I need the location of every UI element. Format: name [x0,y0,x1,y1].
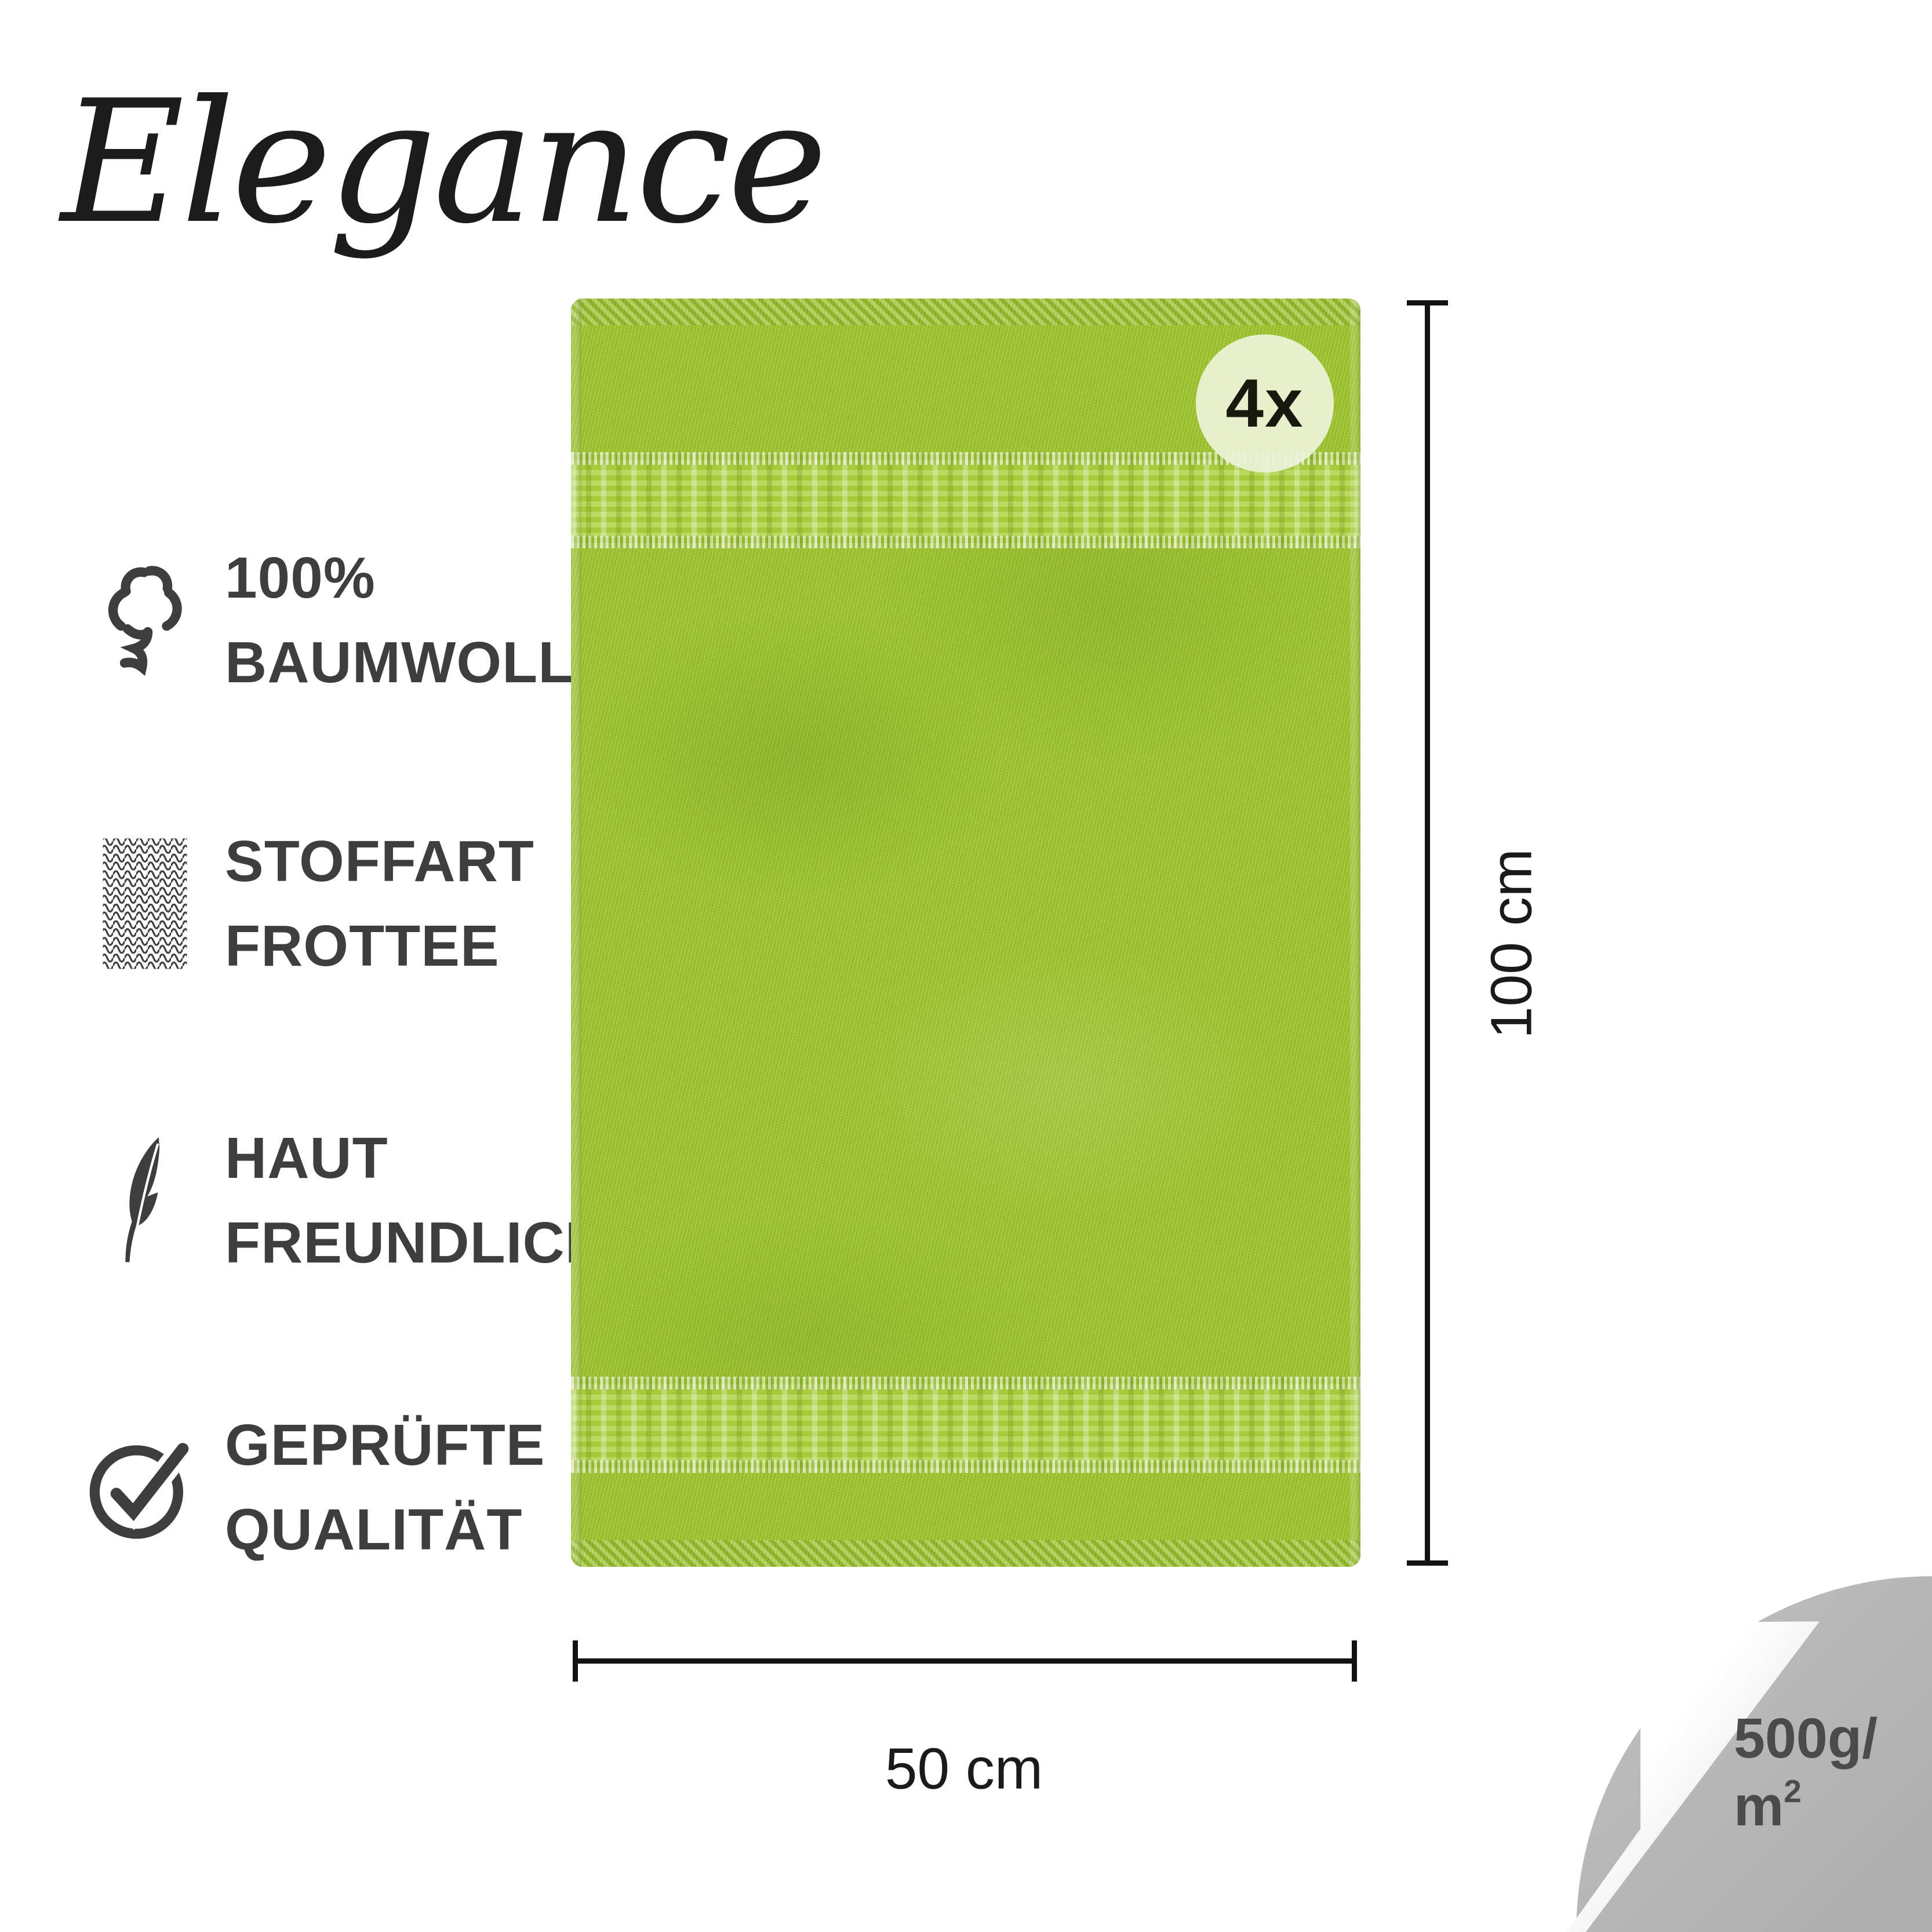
height-dimension-label: 100 cm [1479,849,1545,1039]
feature-line: STOFFART [225,819,534,904]
feather-icon [87,1125,203,1276]
width-dimension-label: 50 cm [885,1736,1043,1803]
page-curl-corner: 500g/ m2 [1549,1549,1932,1932]
fabric-weight-label: 500g/ m2 [1734,1705,1878,1840]
feature-line: HAUT [225,1116,607,1200]
towel-border-band-bottom [571,1377,1360,1473]
feature-cotton: 100% BAUMWOLLE [87,545,638,696]
feature-line: FREUNDLICH [225,1200,607,1285]
feature-quality: GEPRÜFTE QUALITÄT [87,1412,638,1563]
quantity-badge-label: 4x [1225,364,1304,443]
cotton-icon [87,545,203,696]
feature-line: FROTTEE [225,904,534,988]
towel-hem-top [571,299,1360,325]
product-infographic: Elegance 100% BAUMWOLLE [0,0,1932,1932]
fabric-weight-sup: 2 [1784,1773,1802,1809]
quantity-badge: 4x [1196,334,1334,472]
width-dimension-line [573,1658,1357,1664]
feature-fabric: STOFFART FROTTEE [87,828,638,979]
feature-feather: HAUT FREUNDLICH [87,1125,638,1276]
towel-selvage-left [571,299,581,1567]
towel-image: 4x [571,299,1360,1567]
height-dimension-line [1425,300,1430,1566]
feature-line: GEPRÜFTE [225,1403,545,1487]
fabric-texture-icon [87,828,203,979]
towel-selvage-right [1350,299,1360,1567]
fabric-weight-base: m [1734,1774,1784,1838]
feature-line: BAUMWOLLE [225,620,613,705]
fabric-weight-line1: 500g/ [1734,1707,1878,1770]
feature-line: 100% [225,536,613,620]
feature-line: QUALITÄT [225,1487,545,1572]
brand-logo: Elegance [61,70,824,256]
quality-check-icon [87,1412,203,1563]
towel-hem-bottom [571,1540,1360,1567]
